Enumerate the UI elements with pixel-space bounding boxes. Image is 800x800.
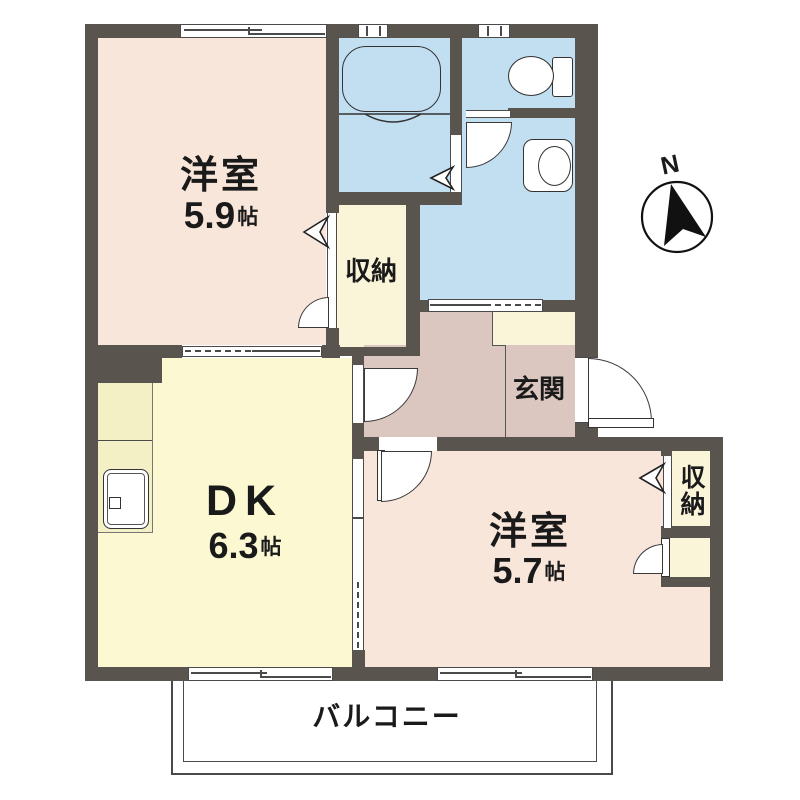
door-opening-dk-hall	[352, 365, 364, 423]
room-label-dk: DK	[145, 477, 345, 525]
kitchen-sink-drain	[109, 497, 121, 509]
wall	[508, 108, 575, 118]
wall	[85, 24, 598, 38]
window-bedroom1-top	[180, 24, 327, 38]
door-opening-bedroom2	[379, 438, 437, 451]
wall	[575, 24, 598, 357]
area-value: 5.9	[184, 195, 235, 237]
wall	[326, 347, 420, 356]
sliding-sash	[252, 350, 320, 352]
wall	[352, 437, 379, 451]
sliding-partition-dk-bedroom2	[352, 459, 364, 580]
compass-needle-icon	[664, 184, 706, 246]
window-sash	[487, 26, 489, 36]
wall	[352, 423, 364, 437]
window-toilet	[478, 24, 510, 38]
counter-line	[98, 440, 152, 441]
window-sash	[191, 672, 267, 674]
window-sash	[500, 26, 502, 36]
wall	[352, 451, 364, 459]
floor-plan: 洋室 5.9帖 収納 DK 6.3帖 玄関 洋室 5.7帖 収納 バルコニー N	[0, 0, 800, 800]
wall	[543, 300, 575, 312]
toilet-tank	[552, 57, 573, 97]
window-sash	[379, 26, 381, 36]
compass-north-label: N	[647, 145, 693, 185]
room-storage-2-lower	[670, 538, 710, 577]
folding-door-track-storage2	[663, 456, 672, 528]
area-value: 5.7	[492, 550, 542, 592]
wall	[710, 437, 723, 681]
window-sash-tick	[515, 670, 517, 678]
door-swing-entrance	[588, 358, 652, 422]
window-sash	[260, 676, 331, 678]
window-bathroom	[358, 24, 388, 38]
room-label-western-2: 洋室	[430, 504, 630, 550]
folding-door-track-bathroom	[450, 135, 462, 192]
door-leaf-toilet	[466, 110, 510, 118]
sliding-dashed	[485, 304, 541, 306]
open-frame-dashed	[357, 582, 359, 648]
area-unit: 帖	[545, 556, 566, 586]
wall	[352, 650, 365, 667]
bathtub	[342, 46, 441, 112]
toilet-bowl	[508, 56, 554, 96]
room-area-western-1: 5.9帖	[121, 194, 321, 238]
room-label-storage-2: 収納	[672, 456, 710, 526]
window-sash-tick	[248, 27, 250, 35]
wall	[661, 577, 710, 587]
area-unit: 帖	[261, 531, 282, 561]
shoe-cabinet	[492, 312, 576, 346]
room-area-western-2: 5.7帖	[429, 550, 629, 592]
room-label-western-1: 洋室	[121, 148, 321, 194]
wall	[85, 667, 723, 681]
wall	[450, 38, 462, 135]
window-sash	[248, 33, 325, 35]
wall	[85, 345, 162, 383]
wall	[418, 300, 428, 312]
wall	[352, 356, 364, 365]
balcony-label: バルコニー	[287, 698, 487, 732]
wall	[437, 437, 723, 451]
wall	[326, 192, 462, 205]
window-sash	[440, 672, 522, 674]
sliding-sash	[430, 304, 485, 306]
window-sash-tick	[260, 670, 262, 678]
room-label-storage-1: 収納	[321, 254, 421, 284]
window-sash	[515, 676, 591, 678]
room-area-dk: 6.3帖	[145, 525, 345, 567]
area-value: 6.3	[208, 525, 258, 567]
window-sash	[184, 29, 262, 31]
wall	[326, 38, 339, 213]
area-unit: 帖	[237, 201, 258, 231]
partition-tick	[352, 517, 364, 519]
sliding-dashed	[185, 350, 251, 352]
room-label-entrance: 玄関	[489, 371, 589, 403]
washbasin-bowl	[538, 146, 571, 186]
window-sash	[366, 26, 368, 36]
compass-circle-icon	[642, 182, 712, 252]
door-leaf-entrance	[588, 418, 654, 428]
